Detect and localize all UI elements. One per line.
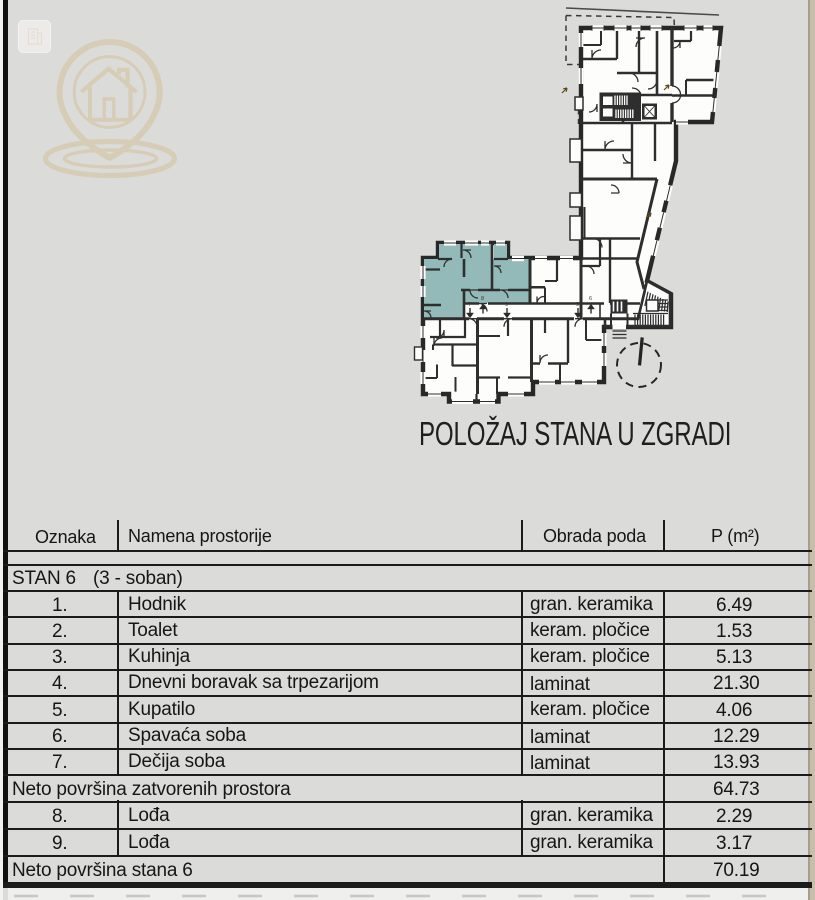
svg-text:7: 7 — [468, 302, 471, 308]
svg-text:9: 9 — [505, 302, 508, 308]
svg-text:8: 8 — [481, 296, 484, 302]
svg-text:5: 5 — [576, 302, 579, 308]
svg-text:6: 6 — [589, 296, 592, 302]
